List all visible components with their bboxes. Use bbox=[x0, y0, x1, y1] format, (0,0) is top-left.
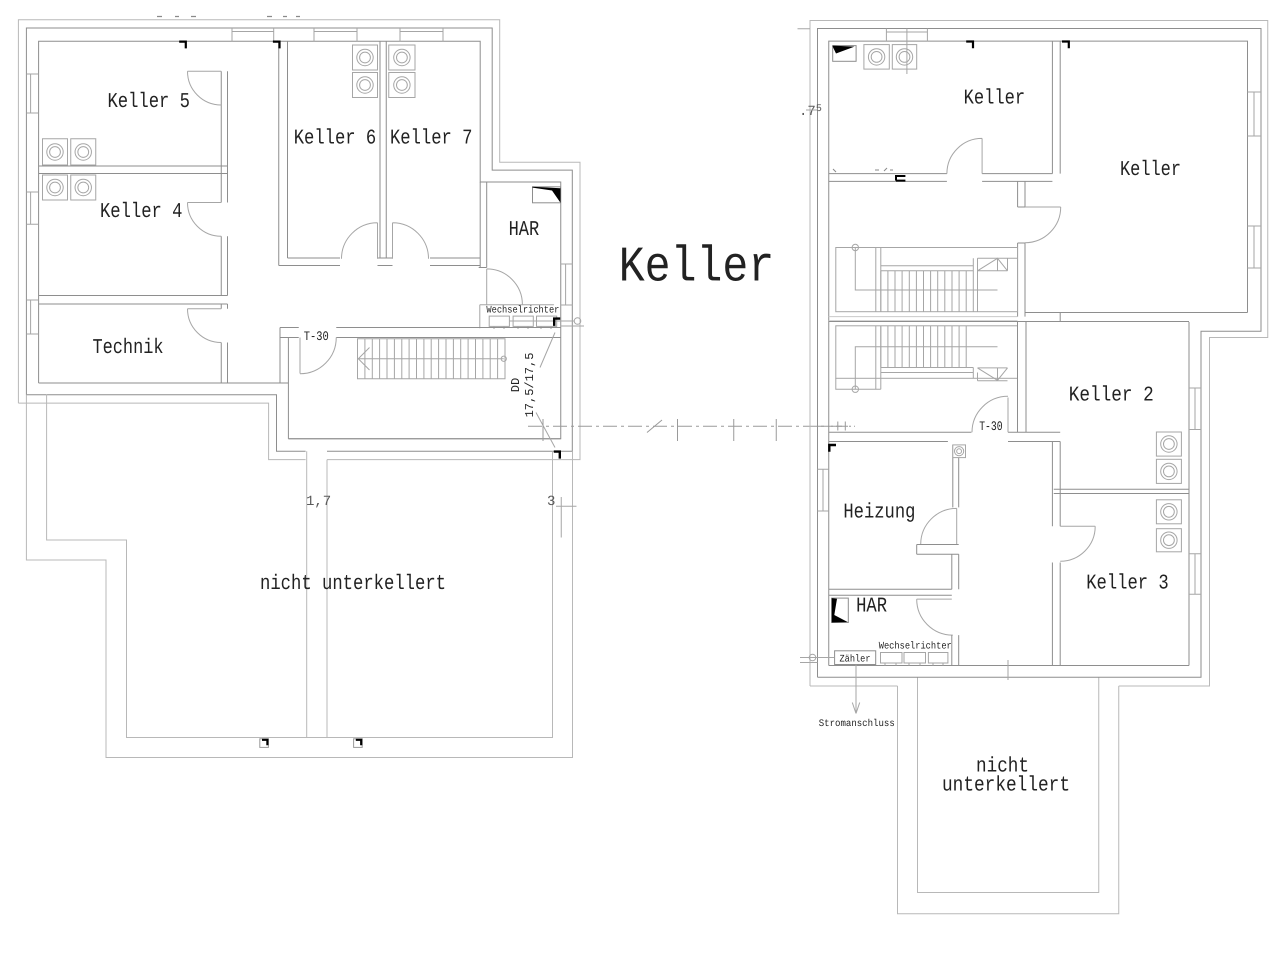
svg-text:T-30: T-30 bbox=[304, 329, 329, 344]
svg-text:HAR: HAR bbox=[509, 219, 540, 242]
svg-text:nicht unterkellert: nicht unterkellert bbox=[260, 573, 446, 596]
svg-text:Keller 3: Keller 3 bbox=[1086, 573, 1169, 596]
svg-text:3: 3 bbox=[547, 494, 555, 510]
svg-text:Technik: Technik bbox=[93, 337, 164, 360]
svg-text:Wechselrichter: Wechselrichter bbox=[486, 305, 559, 317]
svg-text:Keller 2: Keller 2 bbox=[1069, 385, 1154, 408]
svg-text:1,7: 1,7 bbox=[306, 494, 331, 510]
svg-text:Keller 5: Keller 5 bbox=[108, 91, 191, 114]
svg-text:HAR: HAR bbox=[856, 596, 887, 619]
svg-text:Keller: Keller bbox=[964, 88, 1026, 111]
svg-text:Keller 4: Keller 4 bbox=[100, 201, 183, 224]
svg-text:Keller: Keller bbox=[619, 240, 775, 297]
svg-text:Wechselrichter: Wechselrichter bbox=[879, 641, 952, 653]
svg-text:Stromanschluss: Stromanschluss bbox=[819, 718, 895, 730]
svg-text:unterkellert: unterkellert bbox=[942, 775, 1070, 798]
svg-text:T-30: T-30 bbox=[979, 419, 1002, 434]
svg-text:Keller 7: Keller 7 bbox=[390, 127, 473, 150]
svg-text:Keller 6: Keller 6 bbox=[294, 127, 377, 150]
svg-text:DD: DD bbox=[509, 378, 523, 392]
svg-text:Keller: Keller bbox=[1120, 159, 1181, 182]
svg-text:17,5/17,5: 17,5/17,5 bbox=[523, 353, 537, 418]
svg-text:Heizung: Heizung bbox=[843, 502, 915, 525]
svg-text:Zähler: Zähler bbox=[840, 654, 871, 666]
